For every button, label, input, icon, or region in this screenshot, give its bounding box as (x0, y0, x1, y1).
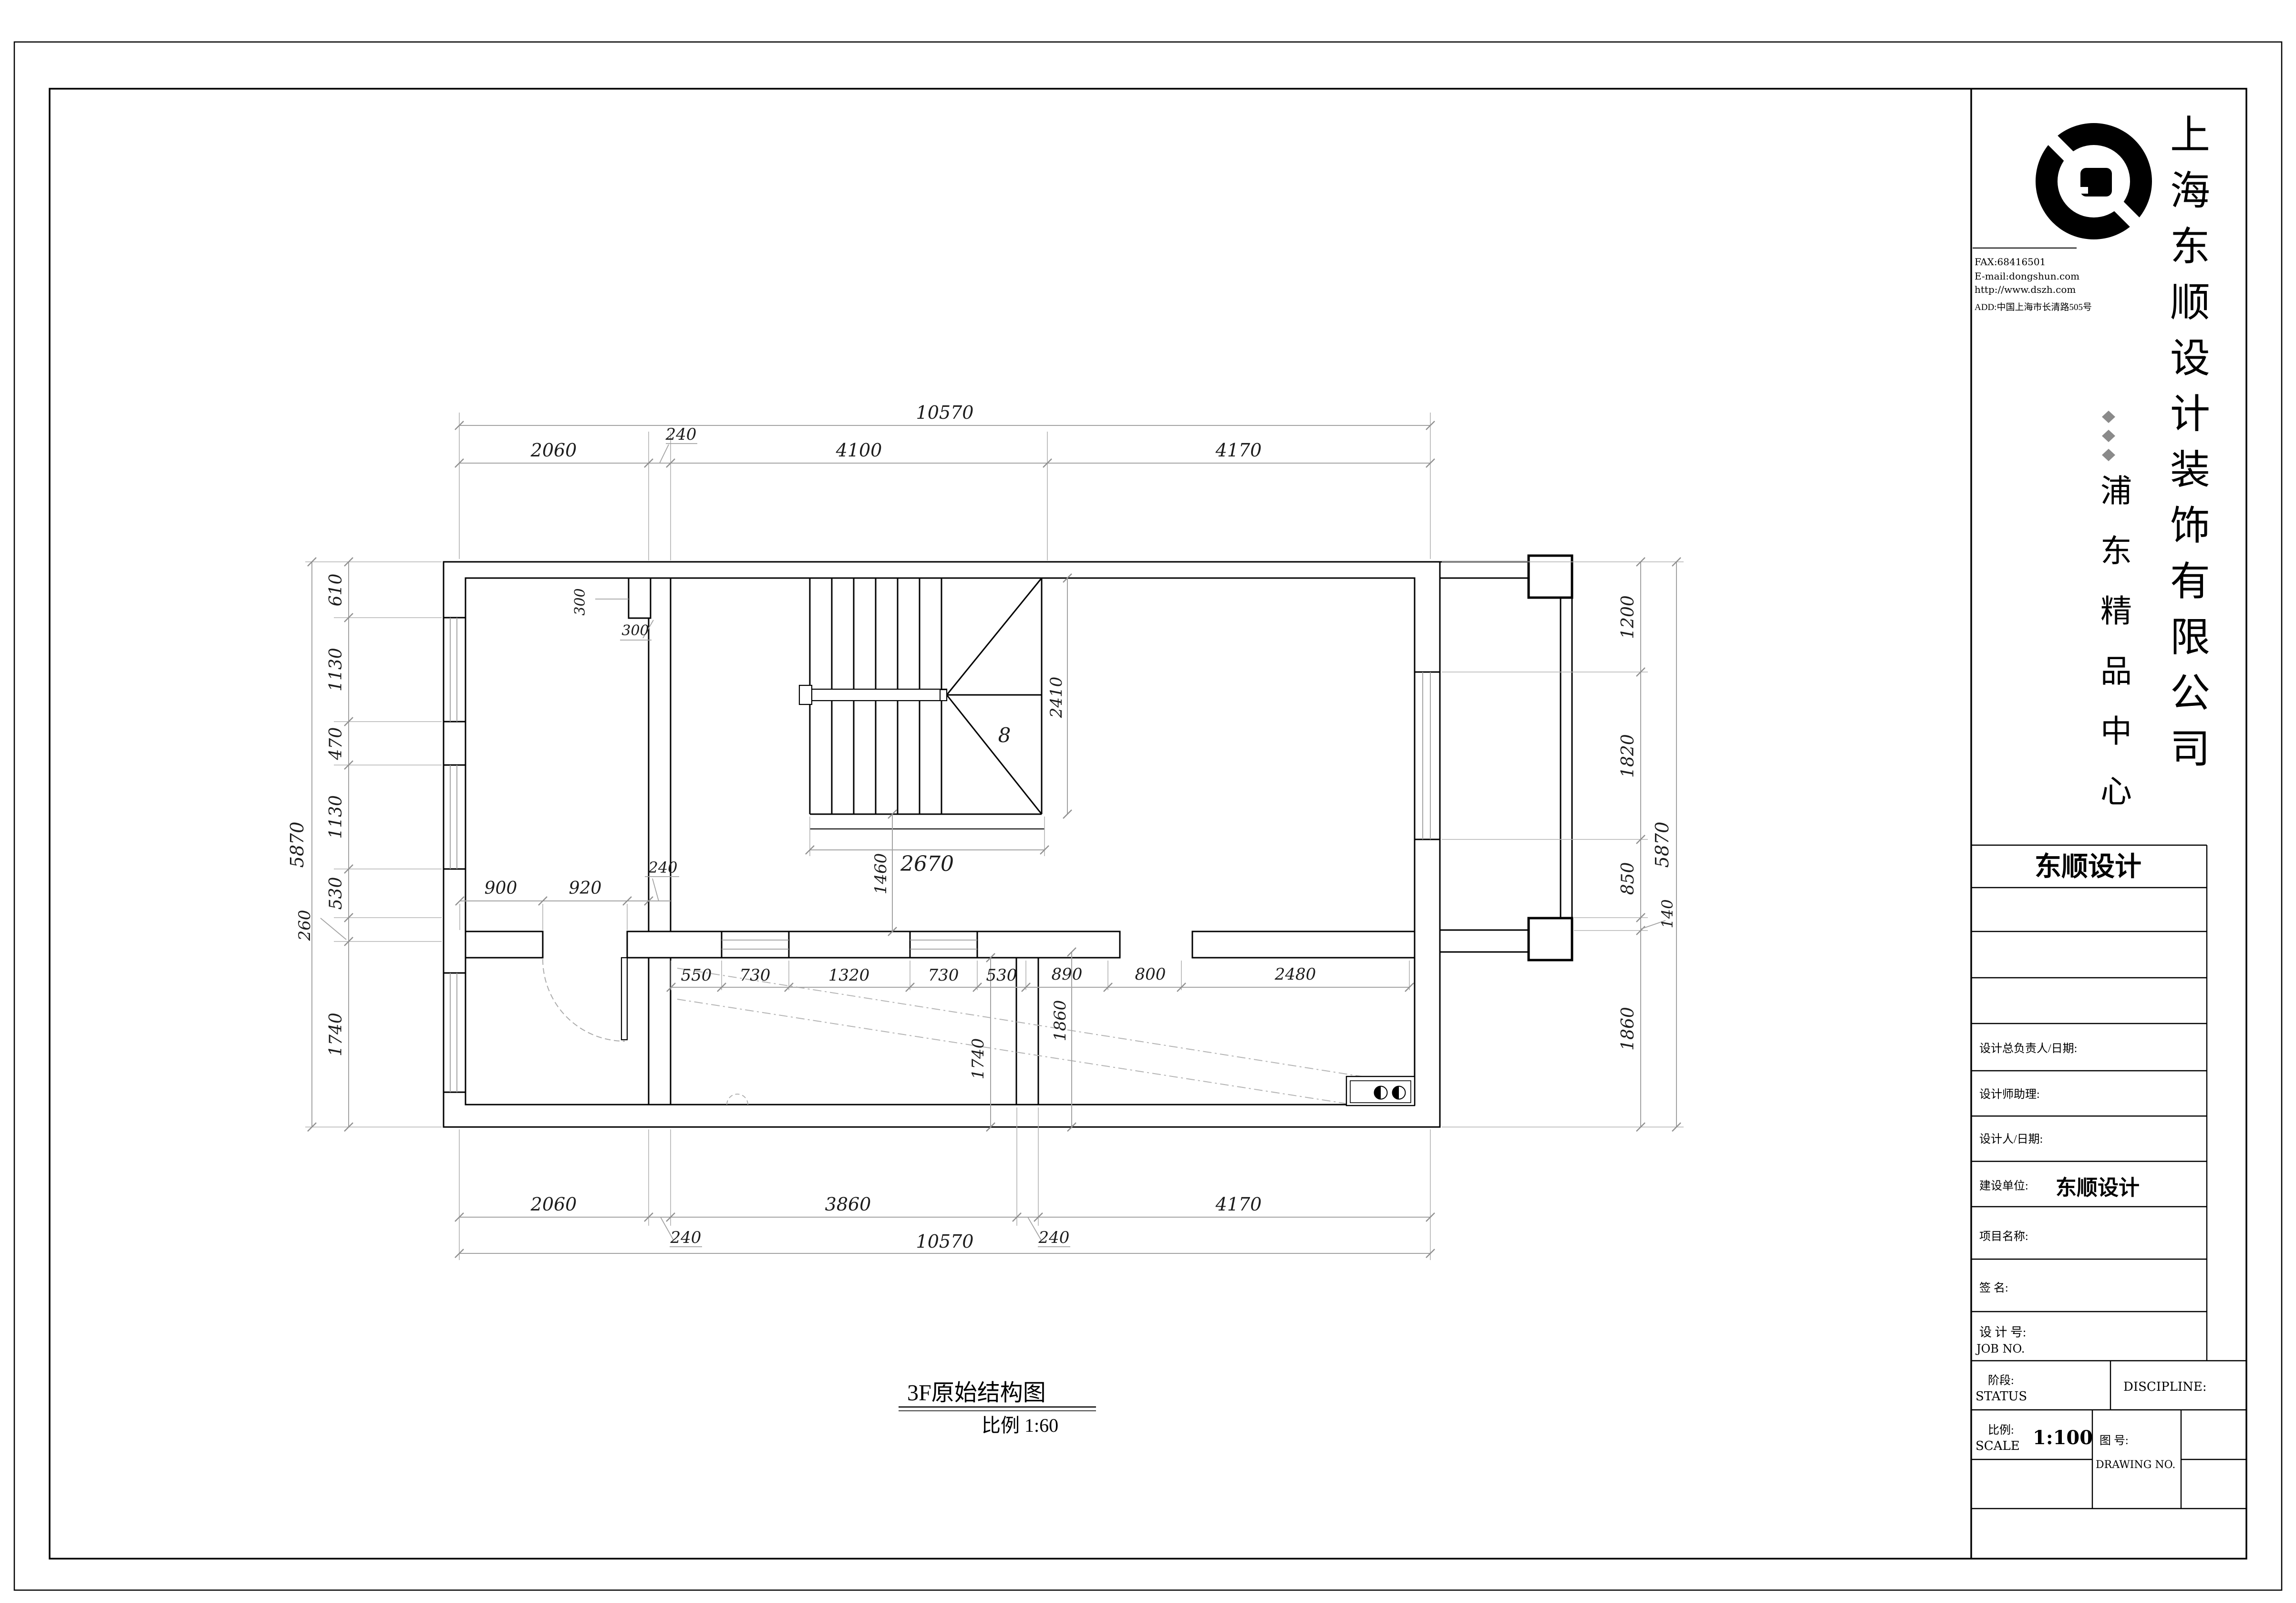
company-logo-icon (2030, 117, 2158, 245)
dim-label: 2410 (1047, 677, 1066, 719)
field-job-no-en: JOB NO. (1975, 1342, 2025, 1355)
dim-label: 1130 (326, 795, 346, 839)
drawing-scale-note: 比例 1:60 (982, 1415, 1058, 1436)
field-client-label: 建设单位: (1979, 1179, 2028, 1192)
dim-label: 730 (928, 966, 959, 985)
dim-label: 530 (986, 966, 1017, 985)
dim-label: 890 (1052, 965, 1083, 984)
stair-side-wall (649, 578, 671, 931)
dim-label: 4170 (1215, 440, 1262, 461)
dim-label: 1130 (326, 648, 346, 692)
company-name-vertical: 上海东顺设计装饰有限公司 (2170, 114, 2210, 772)
dim-label: 5870 (1652, 822, 1673, 868)
email-line: E-mail:dongshun.com (1975, 270, 2079, 282)
field-designer-date: 设计人/日期: (1979, 1133, 2043, 1146)
lower-divider-wall (1016, 958, 1038, 1105)
drawing-title: 3F原始结构图 (907, 1380, 1046, 1406)
dim-label: 850 (1618, 862, 1638, 895)
field-scale-cn: 比例: (1988, 1424, 2014, 1437)
dim-label: 920 (569, 879, 602, 898)
exterior-wall-inner (465, 578, 1415, 1105)
dim-label: 1740 (326, 1013, 346, 1056)
title-block: FAX:68416501 E-mail:dongshun.com http://… (1971, 114, 2246, 1509)
dim-label: 610 (326, 574, 346, 607)
dim-label: 240 (648, 858, 677, 877)
dim-label: 300 (621, 622, 649, 639)
stair-handrail (804, 689, 947, 701)
field-project-label: 项目名称: (1979, 1230, 2028, 1243)
handrail-end (799, 685, 812, 704)
field-client-value: 东顺设计 (2056, 1176, 2140, 1200)
field-discipline: DISCIPLINE: (2123, 1380, 2207, 1394)
drawing-title-block: 3F原始结构图 比例 1:60 (899, 1380, 1096, 1436)
lower-left-room-wall (649, 958, 671, 1105)
right-wing (1440, 556, 1572, 960)
window-left-2 (443, 765, 466, 869)
drawing-sheet: 1057020602404100417020603860417010570240… (0, 0, 2296, 1603)
bathroom-counter (1346, 1076, 1415, 1106)
floor-plan: 1057020602404100417020603860417010570240… (287, 402, 1684, 1260)
dim-label: 2480 (1274, 965, 1316, 984)
dim-label: 550 (681, 966, 712, 985)
field-designer-assistant: 设计师助理: (1979, 1088, 2040, 1101)
window-left-lower (443, 973, 466, 1092)
dim-label: 3860 (825, 1194, 871, 1215)
dim-label: 1200 (1618, 595, 1638, 639)
flue-column (629, 578, 651, 618)
window-left-1 (443, 618, 466, 722)
dim-label: 1460 (871, 853, 890, 895)
dim-label: 240 (665, 425, 697, 444)
brand-box: 东顺设计 (2035, 852, 2141, 882)
field-signature-label: 签 名: (1979, 1282, 2008, 1294)
field-status-en: STATUS (1975, 1389, 2027, 1404)
dim-label: 300 (572, 588, 589, 615)
dim-label: 2670 (900, 852, 954, 876)
window-corridor-1 (722, 931, 789, 958)
dim-label: 1860 (1618, 1007, 1638, 1051)
dim-label: 1860 (1051, 1000, 1070, 1042)
dim-label: 8 (998, 724, 1011, 747)
corner-column-bottom (1529, 918, 1572, 960)
field-scale-value: 1:100 (2033, 1427, 2093, 1449)
dim-label: 4170 (1215, 1194, 1262, 1215)
field-status-cn: 阶段: (1988, 1374, 2014, 1387)
website-line: http://www.dszh.com (1975, 284, 2076, 295)
field-chief-designer: 设计总负责人/日期: (1979, 1042, 2077, 1055)
window-right (1414, 672, 1441, 839)
cad-canvas: 1057020602404100417020603860417010570240… (0, 0, 2296, 1603)
dim-label: 260 (295, 910, 314, 941)
field-job-no-cn: 设 计 号: (1979, 1325, 2026, 1339)
dim-label: 800 (1135, 965, 1166, 984)
handrail-apex (940, 690, 947, 701)
door-leaf (621, 958, 627, 1040)
dim-label: 4100 (836, 440, 882, 461)
field-drawing-no-en: DRAWING NO. (2096, 1459, 2175, 1471)
dim-label: 1320 (828, 966, 870, 985)
dim-label: 730 (740, 966, 771, 985)
dim-label: 10570 (916, 402, 974, 423)
dim-label: 2060 (530, 1194, 577, 1215)
dim-label: 5870 (287, 822, 308, 868)
dim-label: 1740 (969, 1038, 988, 1080)
dim-label: 2060 (530, 440, 577, 461)
diamond-icon (2102, 411, 2115, 461)
dim-label: 240 (1038, 1228, 1070, 1247)
address-line: ADD:中国上海市长清路505号 (1975, 302, 2092, 312)
fax-line: FAX:68416501 (1975, 256, 2046, 268)
dim-label: 240 (670, 1228, 702, 1247)
window-corridor-2 (910, 931, 977, 958)
project-name-vertical: 浦东精品中心 (2100, 474, 2132, 809)
dim-label: 530 (326, 877, 346, 910)
dim-label: 1820 (1618, 734, 1638, 778)
field-drawing-no-cn: 图 号: (2099, 1435, 2129, 1447)
field-scale-en: SCALE (1975, 1439, 2020, 1453)
dim-label: 140 (1658, 899, 1676, 928)
dim-label: 900 (485, 879, 517, 898)
dim-label: 10570 (916, 1231, 974, 1252)
dim-label: 470 (326, 727, 346, 761)
